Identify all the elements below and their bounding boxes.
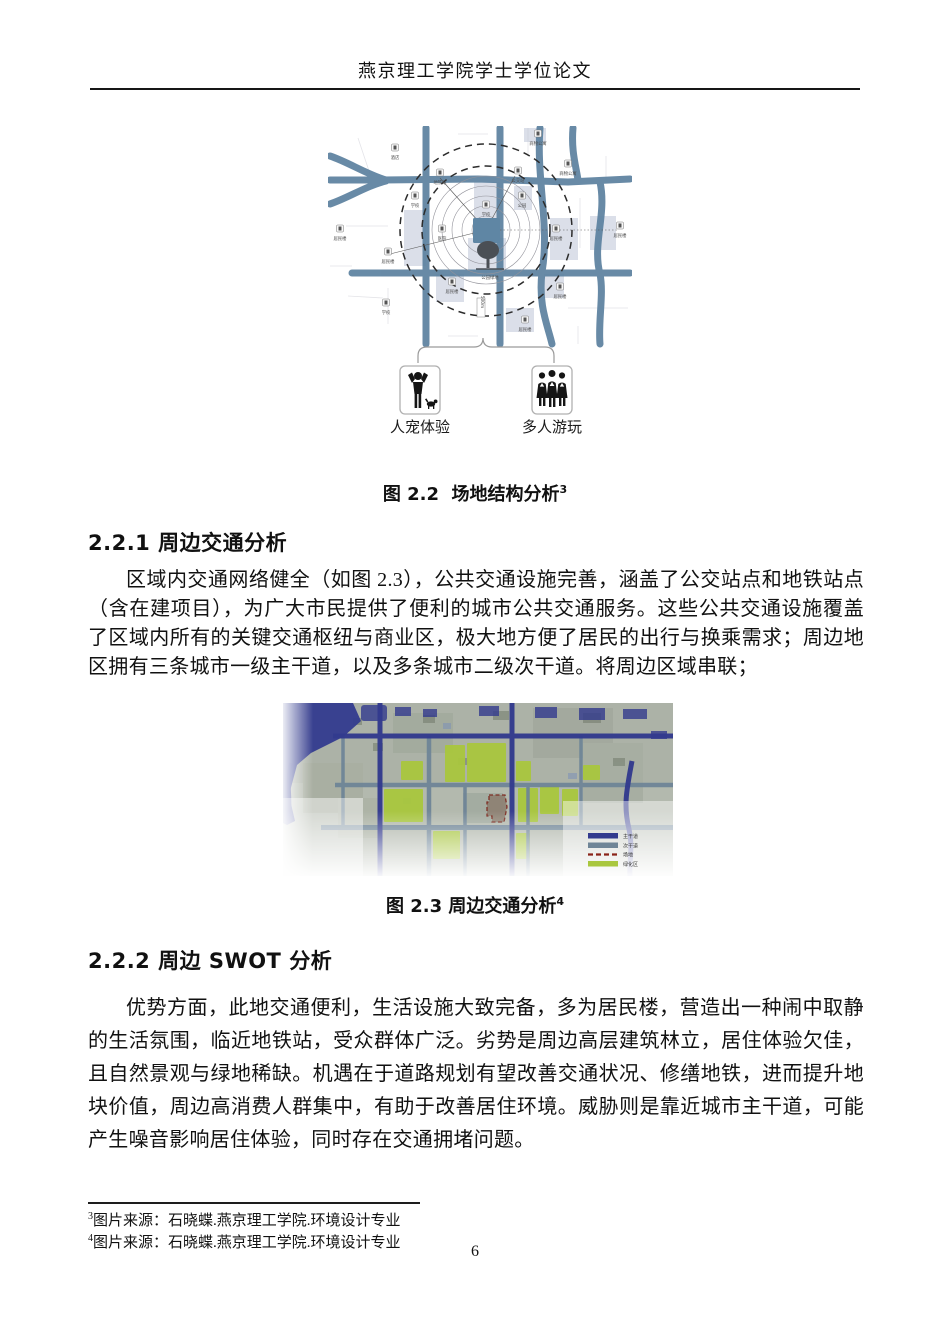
figure23-caption-text: 图 2.3 周边交通分析 (386, 896, 556, 917)
icon-label-group-play: 多人游玩 (522, 418, 582, 436)
park-icon (519, 192, 526, 199)
map-label: 居民楼 (614, 232, 628, 239)
map-label: 公园 (518, 203, 527, 209)
school-icon (412, 192, 419, 199)
figure-traffic-map: 主干道 次干道 场地 绿化区 (283, 703, 673, 876)
map-label: 地铁站 (434, 179, 448, 186)
school-icon (483, 201, 490, 208)
bus-station-icon (515, 167, 522, 174)
legend-secondary-road-swatch (588, 843, 618, 849)
map-label: 学校 (382, 309, 391, 316)
map-label: 酒店 (391, 154, 400, 161)
site-square (473, 218, 500, 243)
person-pet-icon (400, 366, 440, 414)
section-2-2-2-paragraph: 优势方面，此地交通便利，生活设施大致完备，多为居民楼，营造出一种闹中取静的生活氛… (88, 992, 864, 1157)
map-label: 医院 (438, 235, 447, 242)
figure23-caption: 图 2.3 周边交通分析4 (0, 892, 950, 918)
figure22-caption-text: 图 2.2 场地结构分析 (383, 484, 560, 505)
legend-green-zone-swatch (588, 861, 618, 867)
figure23-caption-footnote-mark: 4 (556, 895, 564, 908)
map-label: 商物公寓 (529, 140, 546, 147)
brace-connector (418, 338, 554, 363)
apartment-icon (535, 130, 542, 137)
metro-station-icon (437, 169, 444, 176)
apartment-icon (565, 160, 572, 167)
map-label: 公交站 (512, 177, 526, 184)
hotel-icon (392, 144, 399, 151)
figure-site-structure: 酒店 地铁站 公交站 商物公寓 商物公寓 学校 学校 公园 医院 居民楼 (328, 126, 632, 440)
legend-main-road-label: 主干道 (623, 833, 638, 840)
footnote-3-text: 图片来源：石晓蝶.燕京理工学院.环境设计专业 (93, 1213, 401, 1229)
residential-icon (385, 248, 392, 255)
legend-green-zone-label: 绿化区 (623, 861, 638, 868)
map-label: 居民楼 (382, 258, 396, 265)
hospital-icon (439, 225, 446, 232)
map-label: 居民楼 (519, 326, 533, 333)
legend-secondary-road-label: 次干道 (623, 843, 638, 850)
icon-label-person-pet: 人宠体验 (390, 418, 450, 436)
page-header: 燕京理工学院学士学位论文 (0, 57, 950, 83)
map-label: 居民楼 (446, 288, 460, 295)
residential-icon (617, 222, 624, 229)
section-2-2-1-heading: 2.2.1 周边交通分析 (88, 527, 287, 557)
map-label: 商物公寓 (559, 170, 576, 177)
map-label: 学校 (482, 211, 491, 218)
map-label: 居民楼 (550, 235, 564, 242)
residential-icon (337, 225, 344, 232)
header-rule (90, 88, 860, 90)
residential-icon (557, 283, 564, 290)
figure22-caption-footnote-mark: 3 (560, 483, 568, 496)
school-icon (383, 299, 390, 306)
residential-icon (553, 225, 560, 232)
residential-icon (522, 316, 529, 323)
footnote-divider (88, 1202, 420, 1204)
figure22-caption: 图 2.2 场地结构分析3 (0, 480, 950, 506)
legend-site-label: 场地 (623, 852, 633, 859)
page-number: 6 (0, 1243, 950, 1261)
map-label: 公园绿地 (481, 274, 499, 281)
map-label: 居民楼 (554, 293, 568, 300)
section-2-2-2-heading: 2.2.2 周边 SWOT 分析 (88, 945, 332, 975)
site-structure-map: 酒店 地铁站 公交站 商物公寓 商物公寓 学校 学校 公园 医院 居民楼 (328, 126, 632, 440)
section-2-2-1-paragraph: 区域内交通网络健全（如图 2.3），公共交通设施完善，涵盖了公交站点和地铁站点（… (88, 566, 864, 682)
scale-label: 500m (479, 296, 485, 308)
residential-icon (449, 278, 456, 285)
map-label: 居民楼 (334, 235, 348, 242)
traffic-map: 主干道 次干道 场地 绿化区 (283, 703, 673, 876)
group-play-icon (532, 366, 572, 414)
legend-main-road-swatch (588, 833, 618, 839)
map-label: 学校 (411, 202, 420, 209)
thesis-page: 燕京理工学院学士学位论文 (0, 0, 950, 1344)
footnote-3: 3图片来源：石晓蝶.燕京理工学院.环境设计专业 (88, 1209, 401, 1230)
